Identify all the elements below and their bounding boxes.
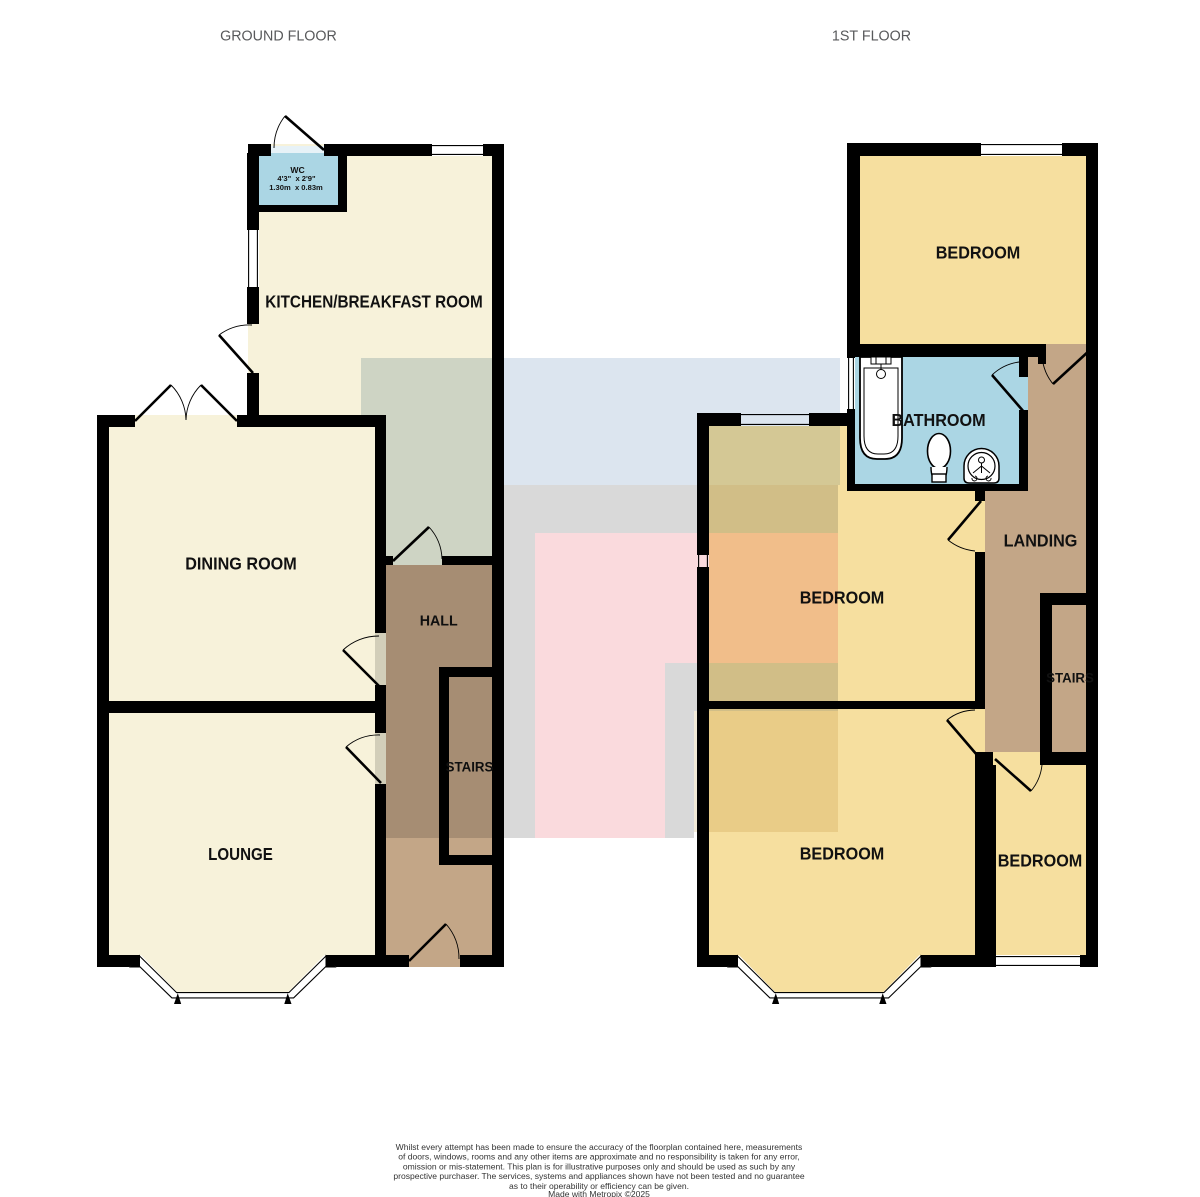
svg-text:prospective purchaser. The ser: prospective purchaser. The services, sys… bbox=[393, 1171, 805, 1181]
svg-text:BEDROOM: BEDROOM bbox=[800, 844, 885, 864]
svg-text:BATHROOM: BATHROOM bbox=[891, 410, 985, 430]
svg-text:LOUNGE: LOUNGE bbox=[208, 844, 273, 865]
svg-text:1.30m x 0.83m: 1.30m x 0.83m bbox=[269, 183, 323, 192]
svg-text:LANDING: LANDING bbox=[1004, 531, 1078, 551]
svg-text:KITCHEN/BREAKFAST ROOM: KITCHEN/BREAKFAST ROOM bbox=[265, 291, 482, 311]
svg-text:omission or mis-statement. Thi: omission or mis-statement. This plan is … bbox=[403, 1161, 796, 1171]
svg-text:STAIRS: STAIRS bbox=[1046, 670, 1094, 685]
svg-text:4'3" x 2'9": 4'3" x 2'9" bbox=[277, 174, 316, 183]
svg-text:Made with Metropix ©2025: Made with Metropix ©2025 bbox=[548, 1189, 650, 1197]
svg-text:of doors, windows, rooms and a: of doors, windows, rooms and any other i… bbox=[398, 1152, 799, 1162]
svg-text:Whilst every attempt has been: Whilst every attempt has been made to en… bbox=[396, 1142, 803, 1152]
svg-text:1ST FLOOR: 1ST FLOOR bbox=[832, 28, 911, 44]
svg-text:DINING ROOM: DINING ROOM bbox=[185, 554, 297, 574]
svg-text:BEDROOM: BEDROOM bbox=[936, 243, 1021, 263]
svg-text:GROUND FLOOR: GROUND FLOOR bbox=[220, 28, 337, 44]
svg-text:BEDROOM: BEDROOM bbox=[998, 851, 1083, 871]
